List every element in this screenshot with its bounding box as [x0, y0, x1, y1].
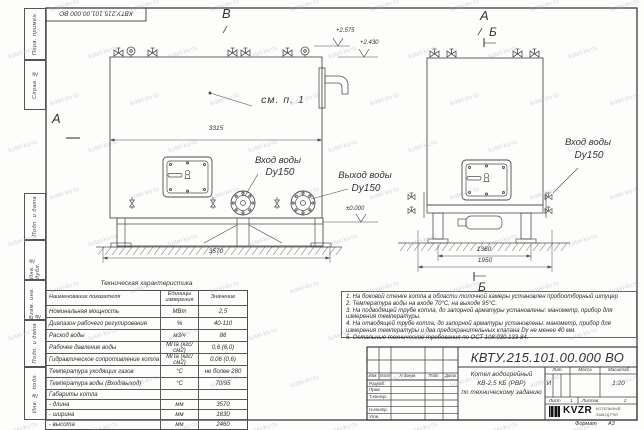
- tb-col-data: Дата: [445, 374, 456, 378]
- spec-table-row: Температура уходящих газов°Сне более 280: [46, 365, 247, 377]
- spec-table-header: Наименование показателя Единицы измерени…: [46, 291, 247, 305]
- dim-1360: 1360: [464, 247, 504, 254]
- dim-3570: 3570: [190, 249, 242, 256]
- boiler-front-view: [66, 26, 378, 263]
- tb-scale-value: 1:20: [612, 381, 625, 388]
- margin-cell-perv-primen: Перв. примен.: [24, 8, 46, 60]
- note-line: 1. На боковой стенке котла в области топ…: [346, 294, 633, 301]
- inlet-right-label: Вход воды: [560, 138, 616, 148]
- kvzr-logo-text: KVZR: [563, 406, 592, 416]
- spec-table-row: Рабочее давление водыМПа (кгс/см2)0,6 (6…: [46, 341, 247, 353]
- tb-lit-value: И: [547, 381, 552, 388]
- notes-block: 1. На боковой стенке котла в области топ…: [341, 291, 637, 338]
- margin-cell-podp-data-1: Подп. и дата: [24, 193, 46, 240]
- tb-col-podp: Подп.: [428, 374, 439, 378]
- tb-col-list: Лист: [380, 374, 391, 378]
- margin-cell-sprav-no: Справ. №: [24, 60, 46, 110]
- tb-sheets-label: Листов: [582, 399, 598, 404]
- kvzr-logo-mark: [549, 406, 560, 417]
- company-name-line1: КОТЕЛЬНЫЙ: [596, 407, 620, 411]
- format-label: Формат: [575, 422, 597, 428]
- margin-cell-inv-dubl: Инв. № дубл.: [24, 240, 46, 280]
- boiler-side-view: [398, 28, 578, 281]
- spec-table-row: - длинамм3570: [46, 399, 247, 409]
- view-marker-b-top: В: [222, 7, 231, 20]
- section-marker-b-right: Б: [489, 26, 497, 38]
- note-line: 2. Температура воды на входе 70°С, на вы…: [346, 301, 633, 308]
- dim-1950: 1950: [465, 258, 505, 265]
- elevation-2575: +2.575: [336, 28, 355, 34]
- tb-role-tkontr: Т.контр.: [369, 395, 387, 400]
- inlet-right-dn: Dy150: [566, 151, 612, 161]
- elevation-ground: ±0.000: [346, 206, 364, 212]
- margin-cell-inv-podl: Инв. № подл.: [24, 367, 46, 420]
- see-note-label: см. п. 1: [252, 95, 314, 106]
- spec-table-row: Габариты котла: [46, 389, 247, 399]
- spec-table-row: Температура воды (Вход/выход)°С70/95: [46, 377, 247, 389]
- inlet-left-label: Вход воды: [250, 156, 306, 166]
- drawing-sheet: { "watermark": {"text": "kotel-kv.ru"}, …: [0, 0, 644, 430]
- tb-col-izm: Изм.: [369, 374, 378, 378]
- tb-mass-label: Масса: [578, 368, 591, 373]
- title-block-designation: КВТУ.215.101.00.000 ВО: [458, 351, 637, 364]
- note-line: 3. На подводящей трубе котла, до запорно…: [346, 308, 633, 322]
- tb-role-nkontr: Н.контр.: [369, 408, 388, 413]
- margin-cell-vzam-inv: Взам. инв. №: [24, 280, 46, 320]
- tb-sheet-value: 1: [570, 399, 573, 404]
- note-line: 5. Остальные технические требования по О…: [346, 335, 633, 342]
- spec-table: Наименование показателя Единицы измерени…: [45, 290, 248, 430]
- margin-cell-podp-data-2: Подп. и дата: [24, 320, 46, 367]
- note-line: 4. На отводящей трубе котла, до запорной…: [346, 321, 633, 335]
- spec-table-row: Номинальная мощностьМВт2,5: [46, 305, 247, 317]
- tb-document-name: Котел водогрейный КВ-2,5 КБ (РВР) по тех…: [458, 371, 545, 397]
- tb-role-razrab: Разраб.: [369, 382, 385, 387]
- company-name-line2: ЗАВОД РЭП: [596, 413, 618, 417]
- tb-col-ndokum: N докум.: [400, 374, 417, 378]
- tb-lit-label: Лит.: [552, 368, 563, 373]
- view-marker-a-right: А: [480, 9, 489, 22]
- tb-sheet-label: Лист: [549, 399, 561, 404]
- spec-table-row: - ширинамм1830: [46, 409, 247, 419]
- spec-table-row: Диапазон рабочего регулирования%40-110: [46, 317, 247, 329]
- spec-table-title: Техническая характеристика: [45, 281, 248, 288]
- spec-table-row: Гидравлическое сопротивление котлаМПа (к…: [46, 353, 247, 365]
- outlet-left-dn: Dy150: [344, 184, 388, 194]
- elevation-2430: +2.430: [360, 40, 379, 46]
- tb-sheets-value: 2: [624, 399, 627, 404]
- outlet-left-label: Выход воды: [334, 171, 396, 181]
- spec-table-row: Расход водым3/ч86: [46, 329, 247, 341]
- dim-3315: 3315: [190, 126, 242, 133]
- spec-table-row: - высотамм2460: [46, 419, 247, 429]
- tb-role-utv: Утв.: [369, 415, 379, 420]
- view-marker-a-left: А: [52, 112, 61, 125]
- tb-role-prov: Пров.: [369, 388, 381, 393]
- format-value: А3: [608, 422, 615, 428]
- tb-scale-label: Масштаб: [608, 368, 629, 373]
- top-stamp-designation: КВТУ.215.101.00.000 ВО: [46, 9, 146, 16]
- inlet-left-dn: Dy150: [258, 168, 302, 178]
